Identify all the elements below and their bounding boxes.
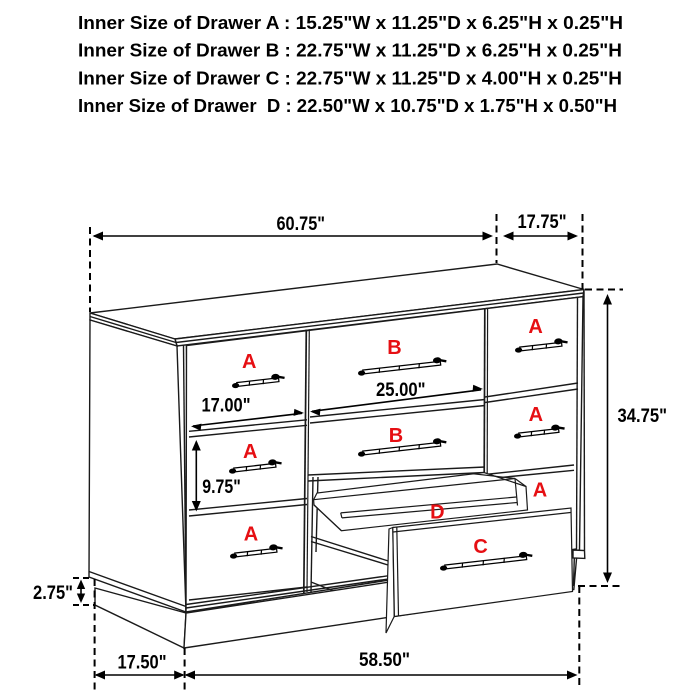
svg-text:A: A <box>533 479 547 501</box>
svg-text:D: D <box>430 502 444 524</box>
svg-text:A: A <box>244 524 258 546</box>
svg-text:A: A <box>243 441 257 463</box>
svg-text:B: B <box>389 425 403 447</box>
svg-text:Inner Size of Drawer B : 22.75: Inner Size of Drawer B : 22.75"W x 11.25… <box>78 41 622 61</box>
svg-text:A: A <box>529 404 543 426</box>
svg-text:34.75": 34.75" <box>618 406 668 427</box>
svg-text:Inner Size of Drawer C : 22.75: Inner Size of Drawer C : 22.75"W x 11.25… <box>78 68 622 88</box>
svg-text:60.75": 60.75" <box>277 214 326 235</box>
svg-text:17.50": 17.50" <box>118 653 167 674</box>
svg-text:C: C <box>473 536 487 558</box>
svg-text:17.00": 17.00" <box>202 396 251 417</box>
svg-text:2.75": 2.75" <box>33 583 73 604</box>
svg-text:25.00": 25.00" <box>376 380 426 401</box>
svg-text:9.75": 9.75" <box>202 477 241 498</box>
svg-text:B: B <box>387 337 401 359</box>
svg-text:Inner Size of Drawer D : 22.5: Inner Size of Drawer D : 22.50"W x 10.75… <box>78 96 617 116</box>
svg-text:A: A <box>528 316 542 338</box>
svg-text:17.75": 17.75" <box>518 212 567 233</box>
svg-text:Inner Size of Drawer A : 15.25: Inner Size of Drawer A : 15.25"W x 11.25… <box>78 13 623 33</box>
svg-text:A: A <box>242 351 256 373</box>
svg-text:58.50": 58.50" <box>359 650 410 671</box>
